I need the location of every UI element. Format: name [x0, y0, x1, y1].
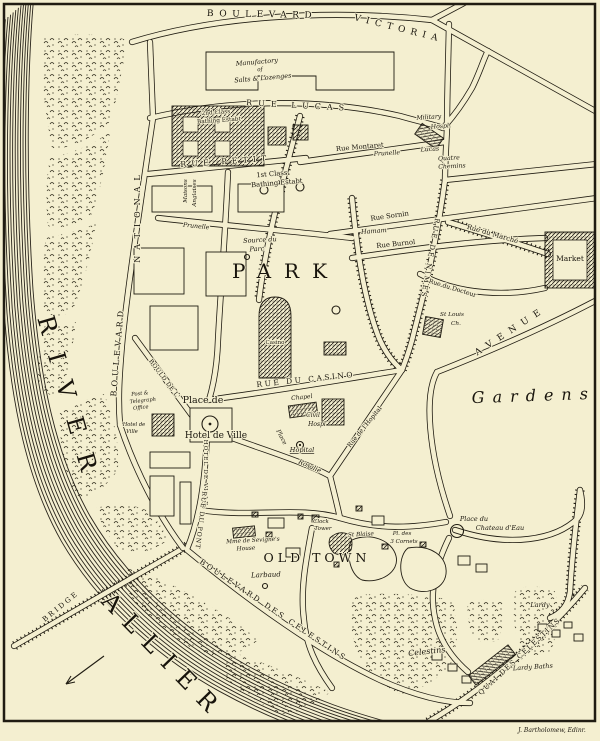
- label-park: PARK: [232, 259, 340, 283]
- label-quatre-chemins-1: Quatre: [438, 154, 461, 162]
- building: [448, 664, 457, 671]
- hotel-de-ville-building: [152, 414, 174, 436]
- building: [150, 306, 198, 350]
- building: [420, 542, 426, 547]
- label-sevigne-2: House: [235, 545, 256, 552]
- label-prunelle-spring: Prunelle: [373, 149, 401, 157]
- sevigne-house-building: [233, 526, 256, 538]
- label-civil-hosp-2: Hospl: [307, 421, 326, 428]
- building: [458, 556, 470, 565]
- label-boulevard: BOULEVARD: [207, 9, 317, 21]
- label-clock-tower-1: Clock: [313, 519, 329, 525]
- label-place-de: Place de: [183, 395, 224, 406]
- tree-patch: [468, 599, 505, 642]
- label-hotel-de-ville-sm-2: Ville: [126, 429, 138, 435]
- label-lardy: Lardy: [529, 601, 549, 609]
- label-larbaud: Larbaud: [250, 570, 282, 579]
- building: [150, 452, 190, 468]
- label-civil-hosp-1: Civil: [306, 412, 320, 419]
- building: [180, 482, 191, 524]
- building: [574, 634, 583, 641]
- label-old-town: OLD TOWN: [264, 550, 371, 565]
- first-class-baths-building: [293, 125, 308, 140]
- building: [552, 630, 560, 637]
- theatre-building: [324, 342, 346, 355]
- road-national-top: [150, 42, 153, 118]
- first-class-baths-building: [268, 127, 286, 145]
- building: [152, 186, 212, 212]
- building: [150, 476, 174, 516]
- building: [298, 514, 303, 519]
- building: [382, 544, 388, 549]
- building: [356, 506, 362, 511]
- label-hopital: Hopital: [289, 446, 314, 454]
- label-national: NATIONAL: [133, 169, 142, 262]
- building: [252, 512, 258, 517]
- label-clock-tower-2: Tower: [314, 526, 332, 532]
- courtyard: [215, 141, 230, 156]
- label-anglaises: Anglaises: [192, 179, 198, 207]
- fountain-dot: [209, 423, 212, 426]
- courtyard: [183, 117, 198, 132]
- label-market: Market: [556, 254, 584, 263]
- casino-building: [259, 297, 291, 378]
- st-louis-church-building: [423, 317, 444, 338]
- label-military-hosp-2: Hospl.: [430, 122, 452, 130]
- label-hotel-de-ville: Hotel de Ville: [185, 431, 247, 441]
- label-maisons: Maisons: [183, 179, 189, 204]
- label-source-du-parc-2: Parc: [248, 245, 264, 254]
- building: [476, 564, 487, 572]
- label-st-louis-1: St Louis: [440, 312, 464, 318]
- label-quatre-chemins-2: Chemins: [438, 162, 466, 170]
- label-cornets-1: Pl. des: [392, 531, 412, 537]
- label-cornets-2: 3 Cornets: [390, 539, 417, 545]
- map-of-vichy: BOULEVARDVICTORIAManufactoryofSalts & Lo…: [0, 0, 600, 741]
- courtyard: [183, 141, 198, 156]
- label-chateau-deau-2: Chateau d'Eau: [476, 524, 524, 532]
- label-hotel-de-ville-sm-1: Hotel de: [122, 422, 146, 428]
- label-signature: J. Bartholomew, Edinr.: [516, 727, 586, 734]
- map-canvas: BOULEVARDVICTORIAManufactoryofSalts & Lo…: [0, 0, 600, 741]
- label-st-louis-2: Ch.: [451, 321, 461, 327]
- label-chateau-deau-1: Place du: [459, 515, 488, 523]
- label-lucas-spring: Lucas: [420, 146, 440, 154]
- label-casino: Casino: [266, 340, 286, 346]
- building: [564, 622, 572, 628]
- building: [372, 516, 384, 525]
- building: [268, 518, 284, 528]
